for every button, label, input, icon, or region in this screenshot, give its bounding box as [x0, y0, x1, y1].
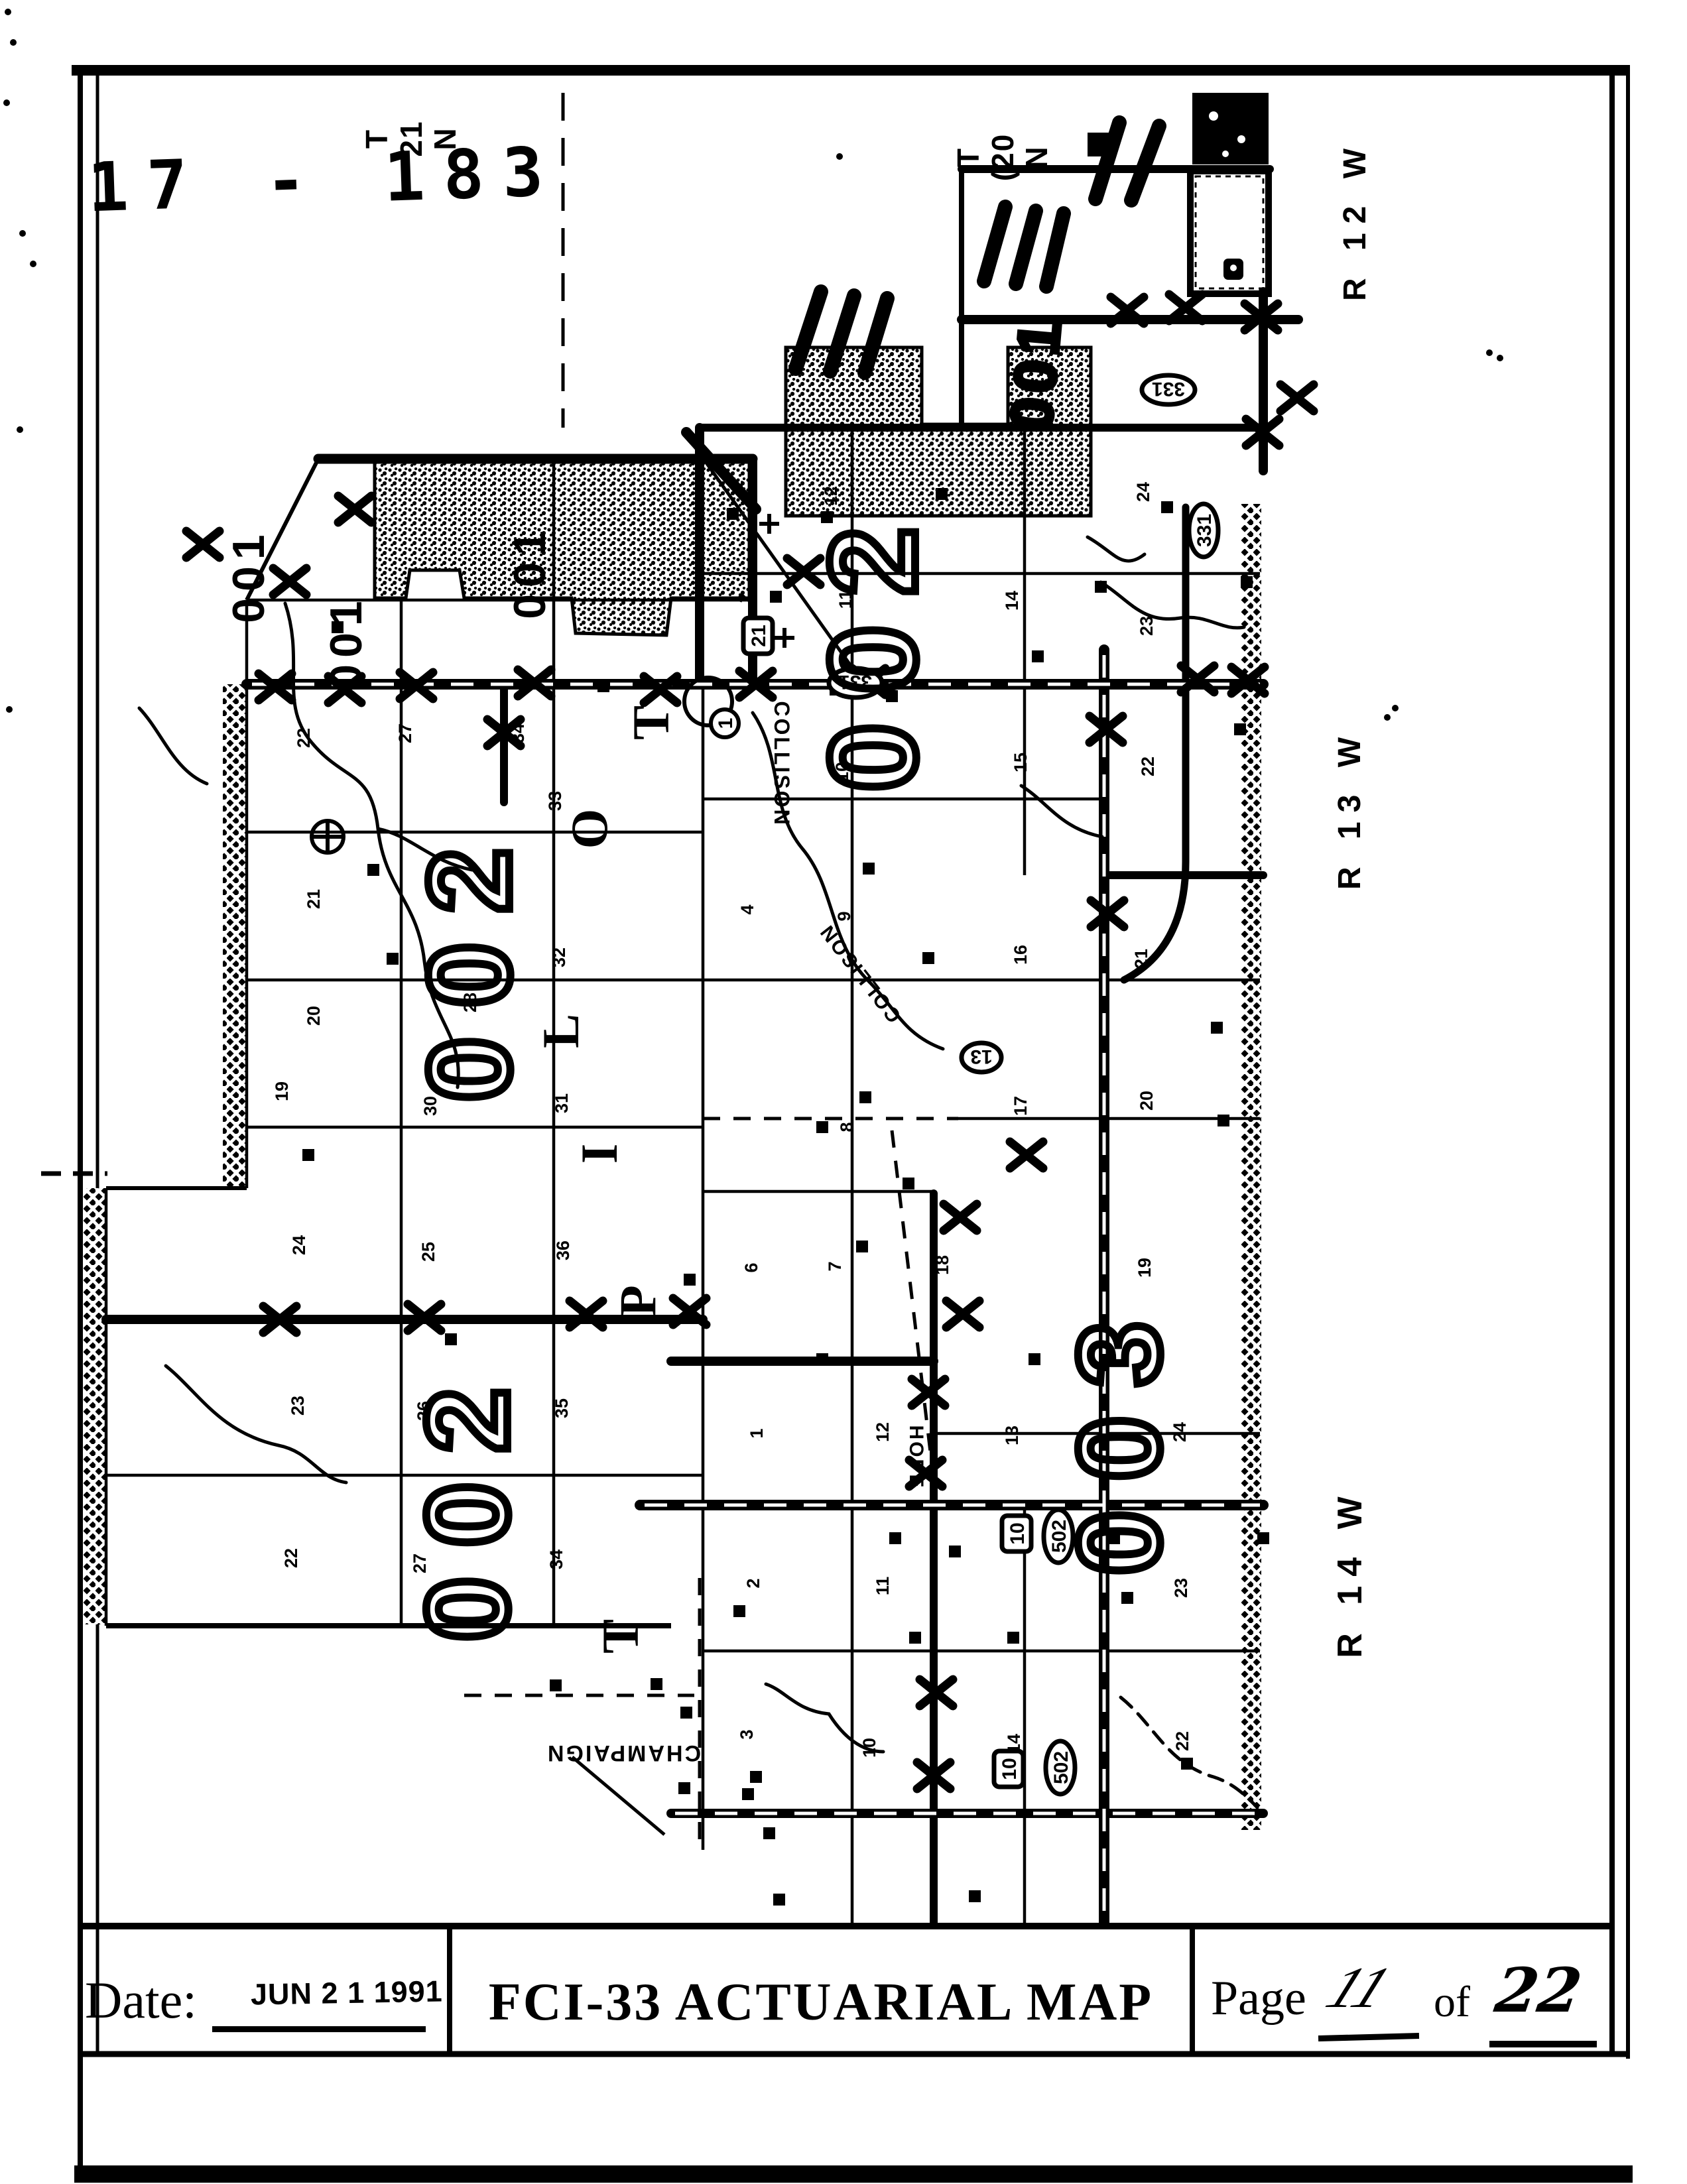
right-township-grid — [703, 428, 1260, 1923]
building-dot — [750, 1771, 762, 1783]
building-dot — [651, 1678, 662, 1690]
x-mark — [273, 568, 306, 595]
building-dot — [1029, 1353, 1040, 1365]
building-dot — [597, 680, 609, 692]
zone-stamp-001: 001 — [223, 528, 274, 623]
section-number: 2 — [743, 1578, 763, 1588]
building-dot — [909, 1632, 921, 1644]
section-number: 10 — [859, 1738, 879, 1758]
building-dot — [889, 1532, 901, 1544]
section-number: 24 — [1133, 482, 1153, 502]
x-mark — [1010, 1142, 1043, 1168]
section-number: 34 — [546, 1549, 566, 1569]
section-number: 11 — [873, 1577, 893, 1596]
zone-stamp-002: 002 — [405, 819, 534, 1102]
speckle — [19, 230, 26, 237]
building-dot — [773, 1894, 785, 1906]
route-marker-oval: 13 — [962, 1043, 1001, 1072]
building-dot — [302, 1149, 314, 1161]
building-dot — [856, 1241, 868, 1252]
building-dot — [387, 953, 399, 965]
speckle — [3, 99, 10, 106]
building-dot — [903, 1178, 914, 1189]
section-number: 34 — [508, 723, 528, 743]
building-dot — [1181, 1758, 1193, 1770]
date-stamp: JUN 2 1 1991 — [251, 1974, 444, 2012]
township-label-line: T — [360, 97, 395, 180]
route-number: 10 — [1007, 1522, 1029, 1544]
section-number: 14 — [1002, 591, 1022, 611]
building-dot — [733, 1605, 745, 1617]
range-label-r14w: R 14 W — [1330, 1447, 1369, 1699]
route-marker-box: 10 — [994, 1751, 1023, 1787]
speckle — [1384, 714, 1391, 721]
scan-edge-strip — [74, 2165, 1633, 2183]
range-label-r13w: R 13 W — [1332, 696, 1370, 922]
date-label: Date: — [85, 1971, 197, 2030]
cross-symbol — [775, 628, 794, 648]
zone-stamp-002: 002 — [403, 1359, 532, 1642]
building-dot — [816, 1121, 828, 1133]
section-number: 22 — [294, 728, 314, 748]
township-letter: T — [622, 705, 680, 740]
section-number: 31 — [552, 1093, 572, 1113]
page-total-underline — [1489, 2041, 1597, 2047]
page-label: Page — [1211, 1971, 1306, 2027]
building-dot — [1211, 1022, 1223, 1034]
document-id: 17 - 183 — [86, 133, 563, 228]
building-dot — [816, 1353, 828, 1365]
section-number: 32 — [549, 947, 569, 967]
x-mark — [946, 1301, 979, 1327]
x-mark — [1281, 385, 1314, 411]
route-number: 13 — [970, 1046, 992, 1067]
township-label-line: (20 — [986, 116, 1021, 198]
route-number: 331 — [1152, 378, 1185, 400]
building-dot — [863, 863, 875, 875]
stipple-area-west — [375, 456, 749, 635]
speckle — [1392, 705, 1399, 711]
scanned-actuarial-map-page: 2227342128332032193031242536232635222734… — [0, 0, 1687, 2184]
township-letter: P — [609, 1285, 666, 1317]
route-marker-oval: 331 — [1189, 504, 1218, 557]
building-dot — [684, 1274, 696, 1286]
section-number: 16 — [1011, 945, 1031, 965]
route-number: 10 — [999, 1758, 1021, 1780]
section-number: 21 — [304, 889, 324, 909]
township-label-line: 21 — [395, 97, 429, 180]
township-letter: I — [570, 1144, 628, 1164]
section-number: 1 — [747, 1428, 767, 1438]
building-dot — [727, 508, 739, 520]
corner-town-block — [1192, 93, 1269, 164]
section-number: 12 — [873, 1422, 893, 1442]
building-dot — [367, 864, 379, 876]
building-dot — [742, 1788, 754, 1800]
section-number: 13 — [1002, 1426, 1022, 1445]
section-number: 22 — [1172, 1731, 1192, 1751]
section-number: 23 — [1137, 616, 1156, 636]
building-dot — [949, 1546, 961, 1557]
town-boundary-rectangle — [1190, 171, 1269, 294]
section-number: 20 — [304, 1006, 324, 1026]
township-label-line: N — [428, 97, 463, 180]
building-dot — [680, 1707, 692, 1719]
building-dot — [1234, 723, 1246, 735]
route-marker-box: 21 — [743, 618, 773, 654]
section-number: 21 — [1131, 949, 1151, 969]
section-number: 1 — [727, 480, 747, 490]
section-number: 22 — [281, 1548, 301, 1568]
building-dot — [1218, 1115, 1229, 1126]
page-total-handwritten: 22 — [1491, 1955, 1586, 2026]
zone-stamp-001: 001 — [998, 314, 1074, 433]
route-number: 502 — [1050, 1751, 1072, 1784]
section-number: 23 — [288, 1396, 308, 1416]
building-dot — [770, 591, 782, 603]
section-number: 24 — [289, 1235, 309, 1255]
building-dot — [922, 952, 934, 964]
speckle — [6, 706, 13, 713]
section-number: 36 — [553, 1241, 573, 1260]
section-number: 8 — [837, 1122, 857, 1132]
section-number: 15 — [1011, 753, 1031, 772]
speckle — [30, 261, 36, 267]
section-number: 27 — [395, 723, 415, 743]
zone-stamp-001: 001 — [321, 594, 371, 689]
section-number: 33 — [545, 791, 565, 811]
section-number: 25 — [418, 1242, 438, 1262]
township-letter: L — [532, 1014, 590, 1048]
route-number: 1 — [715, 718, 737, 729]
township-label-line: T — [952, 116, 986, 198]
section-number: 22 — [1138, 757, 1158, 776]
map-drawing: 2227342128332032193031242536232635222734… — [0, 0, 1687, 2184]
speckle — [1497, 355, 1503, 361]
section-number: 2 — [735, 593, 755, 603]
section-number: 3 — [737, 1729, 757, 1739]
place-name: COLLISON — [815, 920, 905, 1026]
place-name: COLLISON — [770, 701, 794, 826]
township-label-t20n: T (20 N — [952, 116, 1054, 198]
route-marker-oval: 331 — [1142, 375, 1195, 404]
building-dot — [550, 1679, 562, 1691]
speckle — [10, 39, 17, 46]
building-dot — [1032, 650, 1044, 662]
building-dot — [1257, 1532, 1269, 1544]
section-number: 35 — [552, 1398, 572, 1418]
x-mark — [944, 1204, 977, 1231]
map-title: FCI-33 ACTUARIAL MAP — [450, 1926, 1192, 2033]
zone-stamp-001: 001 — [505, 524, 555, 619]
section-number: 9 — [834, 911, 854, 921]
of-label: of — [1434, 1977, 1470, 2028]
section-number: 4 — [737, 904, 757, 914]
x-mark — [186, 531, 219, 558]
building-dot — [763, 1827, 775, 1839]
building-dot — [859, 1091, 871, 1103]
township-label-t21n: T 21 N — [360, 97, 462, 180]
section-number: 19 — [272, 1081, 292, 1101]
speckle — [1486, 349, 1493, 356]
range-label-r12w: R 12 W — [1337, 107, 1375, 333]
county-line-diagonal — [572, 1757, 664, 1835]
township-letter: O — [560, 809, 618, 849]
route-marker-oval: 502 — [1046, 1741, 1075, 1794]
place-name: HOPE — [905, 1425, 927, 1489]
building-dot — [678, 1782, 690, 1794]
cross-symbol — [759, 514, 779, 534]
township-label-line: N — [1020, 116, 1054, 198]
section-number: 20 — [1137, 1091, 1156, 1111]
zone-stamp-003: 003 — [1055, 1292, 1184, 1575]
section-number: 18 — [932, 1255, 952, 1275]
building-dot — [445, 1333, 457, 1345]
place-name: CHAMPAIGN — [546, 1740, 701, 1766]
township-letter: T — [592, 1619, 649, 1654]
x-mark — [912, 1379, 945, 1406]
route-marker-circle: 1 — [711, 709, 739, 737]
section-number: 7 — [825, 1261, 845, 1271]
route-number: 21 — [748, 625, 770, 646]
building-dot — [1121, 1592, 1133, 1604]
route-number: 331 — [1194, 514, 1216, 547]
section-number: 23 — [1171, 1578, 1191, 1598]
route-marker-box: 10 — [1002, 1516, 1031, 1551]
speckle — [17, 426, 23, 433]
building-dot — [1161, 501, 1173, 513]
date-underline — [212, 2026, 426, 2032]
building-dot — [969, 1890, 981, 1902]
section-number: 6 — [741, 1262, 761, 1272]
section-number: 19 — [1135, 1258, 1155, 1278]
speckle — [5, 9, 11, 15]
x-mark — [338, 496, 371, 522]
building-dot — [1007, 1632, 1019, 1644]
building-dot — [1095, 581, 1107, 593]
section-number: 17 — [1011, 1096, 1031, 1116]
zone-stamp-002: 002 — [805, 497, 942, 792]
building-dot — [1241, 576, 1253, 588]
speckle — [836, 153, 843, 160]
